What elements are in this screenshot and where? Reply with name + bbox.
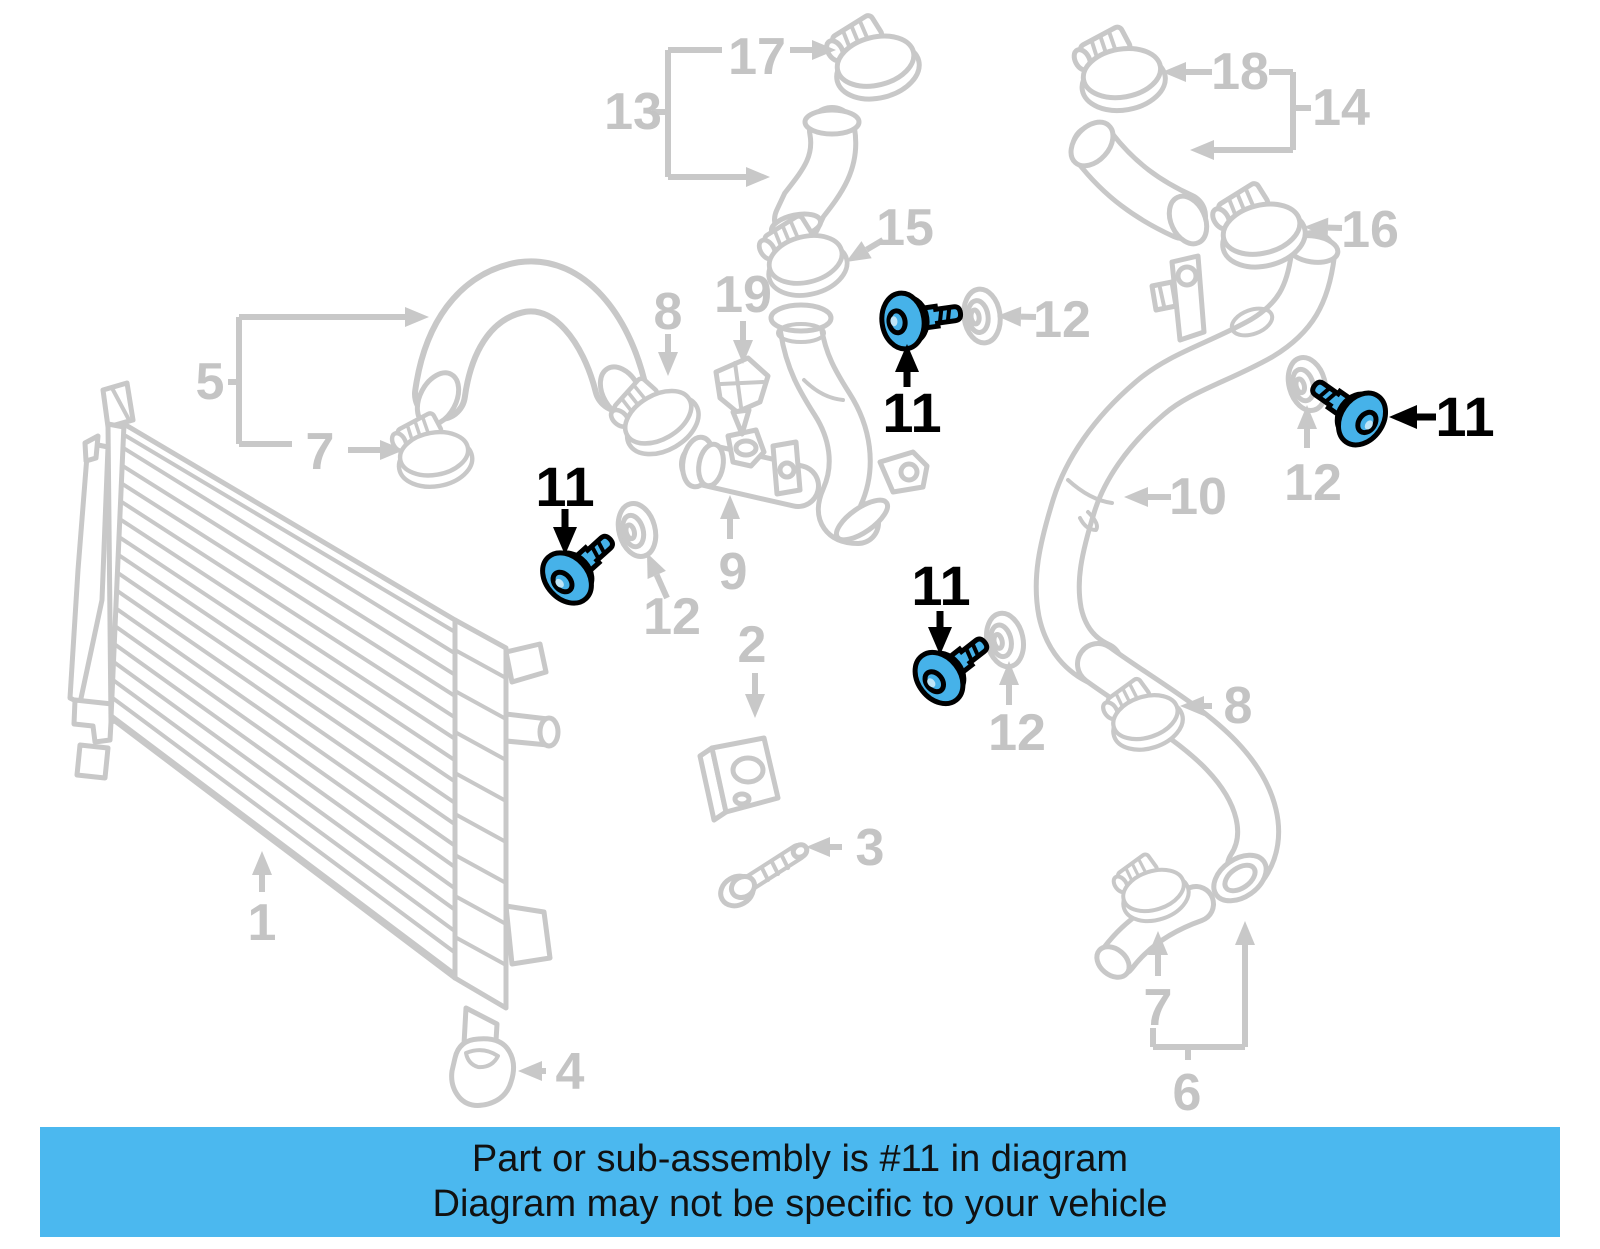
- bolt-3: [715, 842, 809, 911]
- sensor-19: [716, 358, 768, 434]
- fastener-11-top: [878, 285, 964, 351]
- hose-clamp-17: [818, 5, 925, 109]
- intercooler-radiator: [70, 383, 558, 1058]
- cap-part-4: [452, 1039, 514, 1106]
- grommet-12-left: [613, 499, 662, 560]
- parts-diagram-page: 1713181415168191257111292111112101211831…: [0, 0, 1600, 1249]
- grommet-12-bottom: [982, 610, 1028, 670]
- info-banner: Part or sub-assembly is #11 in diagram D…: [40, 1127, 1560, 1237]
- elbow-hose-13: [769, 110, 859, 242]
- bracket-2: [700, 738, 778, 820]
- charge-pipe-10: [1058, 233, 1340, 664]
- hose-clamp-15: [751, 206, 853, 304]
- hose-clamp-18: [1067, 19, 1170, 118]
- banner-line-1: Part or sub-assembly is #11 in diagram: [472, 1137, 1128, 1182]
- parts-diagram-canvas: [0, 0, 1600, 1249]
- elbow-hose-14: [1063, 114, 1214, 250]
- banner-line-2: Diagram may not be specific to your vehi…: [433, 1182, 1168, 1227]
- fastener-11-left: [533, 518, 629, 612]
